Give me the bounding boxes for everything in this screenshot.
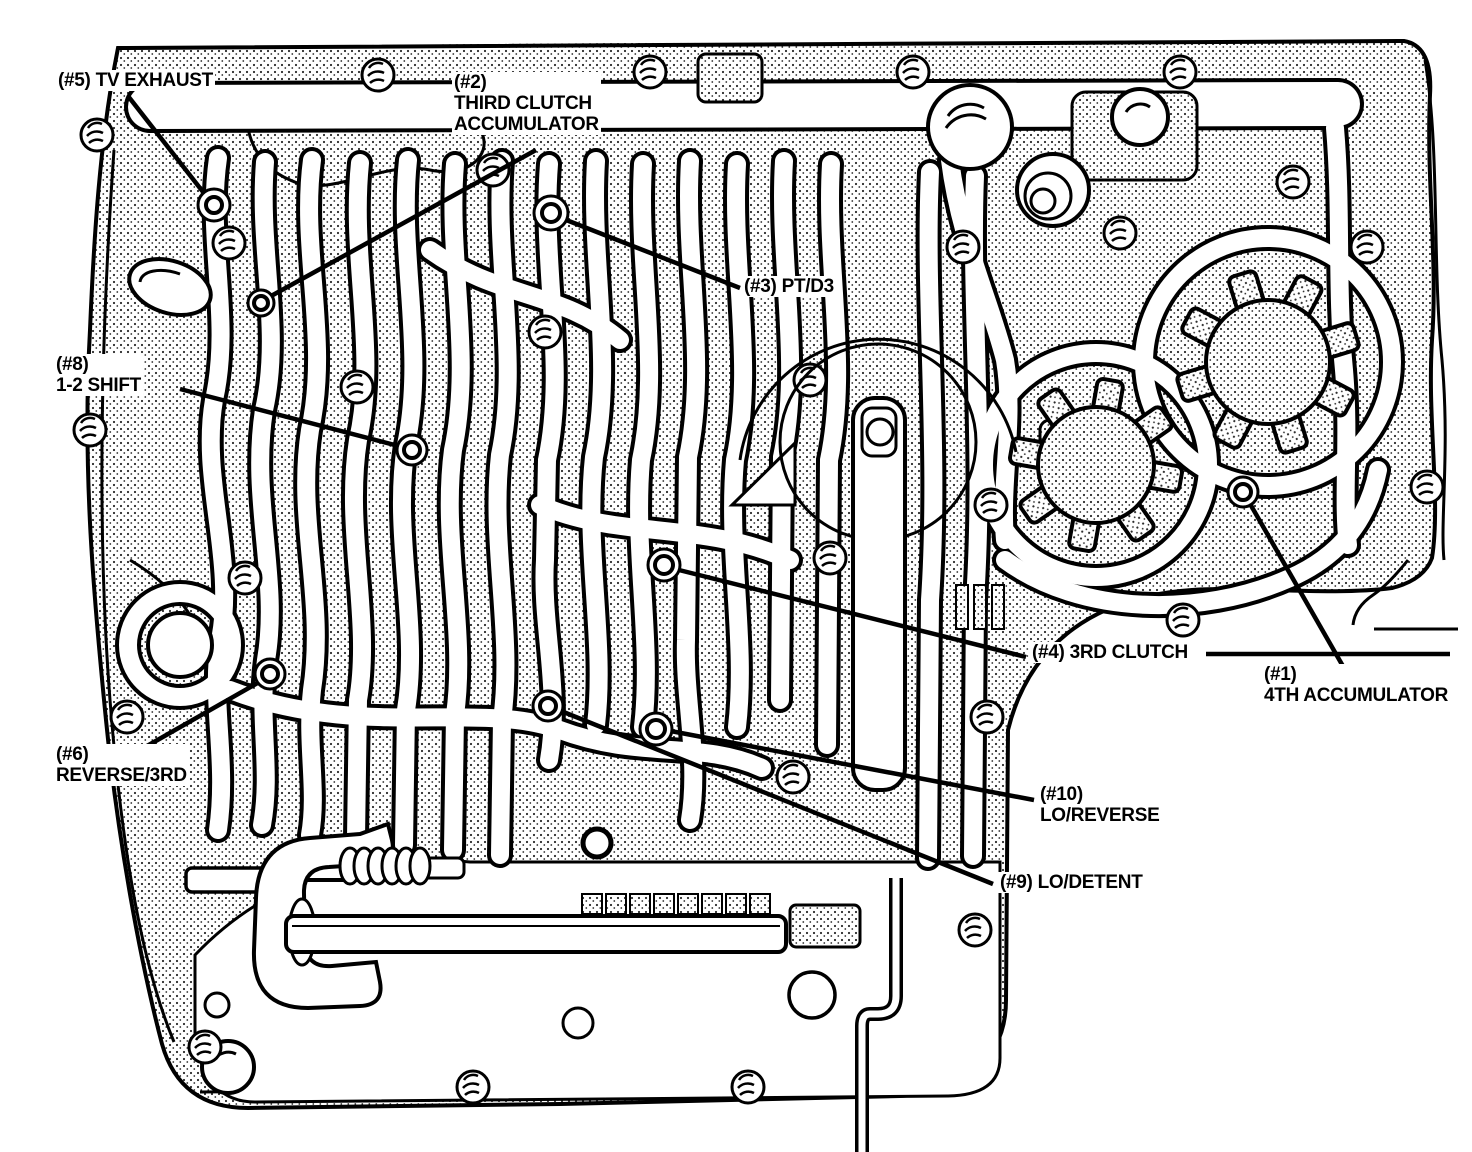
check-ball-1 (1228, 477, 1258, 507)
check-ball-6 (255, 659, 285, 689)
callout-10-number: (#10) (1040, 784, 1159, 805)
callout-9: (#9) LO/DETENT (998, 872, 1145, 893)
manual-valve-strip (853, 398, 905, 790)
callout-1: (#1) 4TH ACCUMULATOR (1262, 664, 1450, 706)
callout-10: (#10) LO/REVERSE (1038, 784, 1161, 826)
callout-2-text2: ACCUMULATOR (454, 114, 599, 135)
callout-1-text: 4TH ACCUMULATOR (1264, 685, 1448, 706)
callout-6-text: REVERSE/3RD (56, 765, 187, 786)
callout-10-text: LO/REVERSE (1040, 805, 1159, 826)
callout-1-number: (#1) (1264, 664, 1448, 685)
check-ball-2 (248, 290, 274, 316)
callout-9-text: (#9) LO/DETENT (1000, 872, 1143, 893)
check-ball-5 (198, 189, 230, 221)
callout-8: (#8) 1-2 SHIFT (54, 354, 143, 396)
check-ball-8 (397, 435, 427, 465)
callout-2-number: (#2) (454, 72, 599, 93)
check-ball-3 (534, 196, 568, 230)
callout-8-number: (#8) (56, 354, 141, 375)
callout-6-number: (#6) (56, 744, 187, 765)
callout-3-text: (#3) PT/D3 (744, 276, 834, 297)
callout-3: (#3) PT/D3 (742, 276, 836, 297)
check-ball-4 (648, 549, 680, 581)
callout-5: (#5) TV EXHAUST (56, 70, 215, 91)
callout-6: (#6) REVERSE/3RD (54, 744, 189, 786)
callout-4-text: (#4) 3RD CLUTCH (1032, 642, 1188, 663)
case-line-art (0, 0, 1472, 1152)
callout-4: (#4) 3RD CLUTCH (1030, 642, 1190, 663)
check-ball-10 (640, 713, 672, 745)
callout-8-text: 1-2 SHIFT (56, 375, 141, 396)
valve-body-diagram: (#5) TV EXHAUST (#2) THIRD CLUTCH ACCUMU… (0, 0, 1472, 1152)
callout-2: (#2) THIRD CLUTCH ACCUMULATOR (452, 72, 601, 135)
callout-2-text1: THIRD CLUTCH (454, 93, 599, 114)
callout-5-text: (#5) TV EXHAUST (58, 70, 213, 91)
check-ball-9 (533, 691, 563, 721)
